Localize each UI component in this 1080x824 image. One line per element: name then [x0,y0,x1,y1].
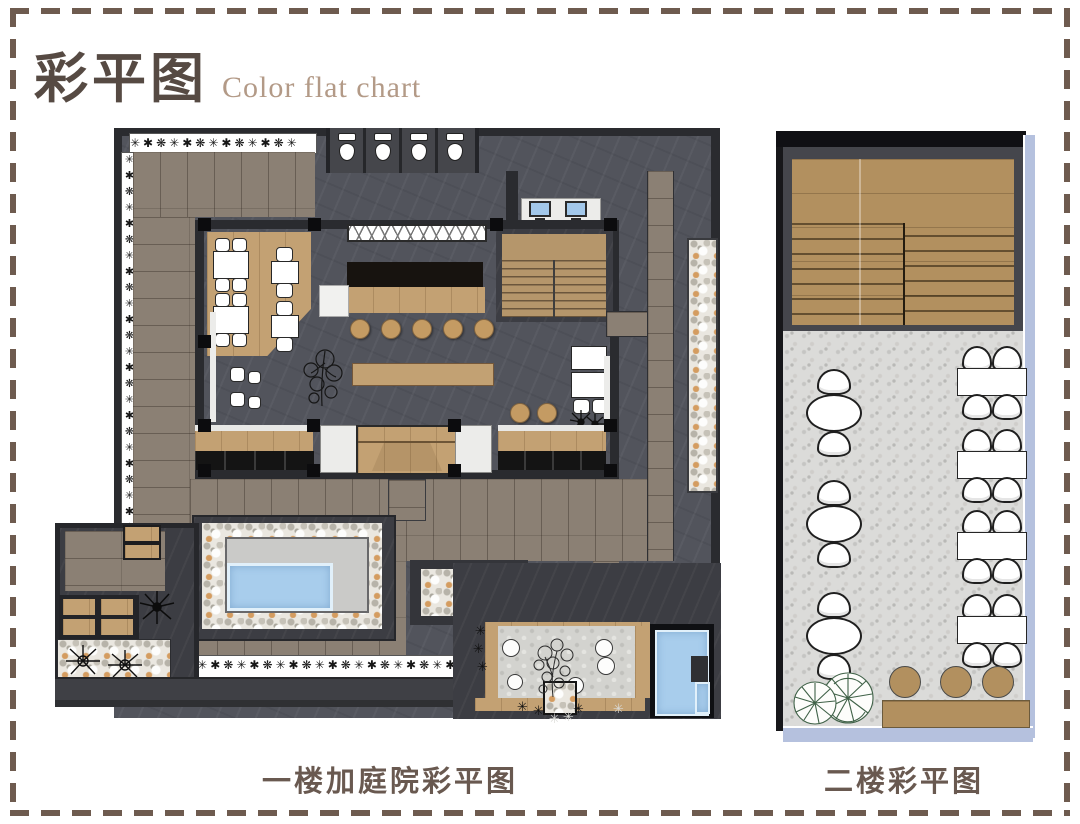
round-table [806,505,862,543]
ramp-slope [372,441,442,471]
annex-shelf [123,543,161,560]
platform-divider [903,223,905,325]
plant-icon: ✳ [475,625,486,638]
dining-chair [276,301,293,316]
courtyard-block: ✳ ✳ ✳ ✳ ✳ ✳ ✳ ✳ ✳ [453,563,721,719]
courtyard-wood-edge [635,626,650,698]
bench-cushions [195,451,314,470]
page-title: 彩平图 [34,34,208,113]
floor-plan-second [775,123,1033,740]
stall-divider [435,128,438,173]
table-4seat [957,532,1027,560]
column [198,464,211,477]
cabinet-cell [63,619,95,635]
low-stool [230,392,245,407]
stair-divider [553,260,555,317]
column [198,218,211,231]
walkway-east [647,171,674,561]
page-header: 彩平图 Color flat chart [34,34,421,113]
staircase [502,234,606,317]
pebble-strip-east [687,238,718,493]
chair [817,369,851,395]
column [604,464,617,477]
entry-side-panel [320,425,357,473]
dining-table-small [271,315,299,338]
page: 彩平图 Color flat chart ✳✱❋✳✱❋✳✱❋✳✱❋✳ ✳✱❋✳✱… [0,0,1080,824]
pool [227,563,333,611]
column [448,419,461,432]
lattice-ceiling-strip [347,224,487,242]
deck-left [133,217,195,523]
wall-rail-east [604,356,610,428]
column [307,464,320,477]
toilet-icon [334,133,360,163]
deck-top [133,152,315,217]
dashed-border-left [10,8,16,816]
dining-chair [232,333,247,347]
dining-chair [232,278,247,292]
chair [992,477,1022,503]
chair [962,642,992,668]
pond-ledge [691,656,708,682]
bar-counter-2f [882,700,1030,728]
communal-table [352,363,494,386]
platform-seam [859,159,861,325]
low-stool [248,371,261,384]
plant-border-top: ✳✱❋✳✱❋✳✱❋✳✱❋✳ [129,133,317,154]
dashed-border-top [10,8,1070,14]
monitor-icon [529,201,551,220]
sidewalk-band [55,677,459,707]
stool [510,403,530,423]
bar-stool [982,666,1014,698]
column [490,218,503,231]
caption-first-floor: 一楼加庭院彩平图 [55,758,725,800]
chair [992,394,1022,420]
chair [992,642,1022,668]
dining-chair [215,278,230,292]
plant-icon: ✳ [573,703,584,716]
bench-seat [498,431,606,451]
toilet-icon [370,133,396,163]
column [198,335,211,348]
chair [817,480,851,506]
dining-chair [215,238,230,252]
annex-shelf [123,525,161,543]
bar-counter-top [347,262,483,287]
wall-rail-west [210,312,216,422]
chair [992,558,1022,584]
dining-chair [232,238,247,252]
column [448,464,461,477]
stool [537,403,557,423]
dining-table [213,251,249,279]
dining-chair [276,337,293,352]
low-stool [248,396,261,409]
tree-plan-icon [298,346,348,408]
stepping-stone [595,639,613,657]
column [308,218,321,231]
pond-channel [695,682,710,714]
bench-cushions [498,451,606,470]
dining-chair [276,283,293,298]
plant-icon: ✳ [517,701,528,714]
table-4seat [957,368,1027,396]
fan-plant-icon [61,641,105,681]
bar-stool [940,666,972,698]
dashed-border-bottom [10,810,1070,816]
wood-platform-2f [792,159,1014,325]
balcony-rail-east [1023,135,1035,738]
side-table [571,346,607,370]
dining-table-small [271,261,299,284]
stall-divider [399,128,402,173]
column [198,419,211,432]
dining-chair [276,247,293,262]
chair [817,592,851,618]
platform-steps-right [905,235,1014,325]
column [604,419,617,432]
chair [817,431,851,457]
wall-north-2f [776,131,1026,147]
plant-icon: ✳ [613,703,624,716]
monitor-icon [565,201,587,220]
column [307,419,320,432]
bar-stool [443,319,463,339]
column [604,218,617,231]
round-table [806,394,862,432]
round-table [806,617,862,655]
bar-counter-front [347,287,485,313]
annex-cabinet [59,595,139,639]
dining-chair [215,333,230,347]
bar-stool [381,319,401,339]
green-plant-icon [792,675,838,731]
chair [962,558,992,584]
chair [962,394,992,420]
dining-table [213,306,249,334]
platform-steps-left [792,223,903,325]
table-4seat [957,451,1027,479]
bar-stool [889,666,921,698]
plant-icon: ✳ [563,711,574,724]
cabinet-cell [63,599,95,615]
stall-divider [363,128,366,173]
entry-ramp [356,425,458,475]
dining-chair [215,293,230,307]
floor-plan-first: ✳✱❋✳✱❋✳✱❋✳✱❋✳ ✳✱❋✳✱❋✳✱❋✳✱❋✳✱❋✳✱❋✳✱❋✳✱❋✳✱… [55,125,725,740]
plant-icon: ✳ [549,713,560,726]
plant-icon: ✳ [477,661,488,674]
plant-icon: ✳ [533,705,544,718]
restroom-block [326,128,479,173]
bench-seat [195,431,313,451]
bar-stool [350,319,370,339]
cabinet-cell [101,599,133,615]
bar-stool [474,319,494,339]
page-subtitle: Color flat chart [222,71,421,105]
cabinet-cell [101,619,133,635]
stair-bridge [606,311,648,337]
dashed-border-right [1064,8,1070,816]
side-table [571,372,607,398]
table-4seat [957,616,1027,644]
bar-stool [412,319,432,339]
caption-second-floor: 二楼彩平图 [775,758,1033,800]
plant-icon: ✳ [473,643,484,656]
dining-chair [232,293,247,307]
stepping-stone [597,657,615,675]
fan-plant-icon [135,585,179,629]
low-stool [230,367,245,382]
toilet-icon [442,133,468,163]
chair [962,477,992,503]
bar-end-cabinet [319,285,349,317]
scatter-tree-icon [515,631,593,701]
chair [817,542,851,568]
toilet-icon [406,133,432,163]
